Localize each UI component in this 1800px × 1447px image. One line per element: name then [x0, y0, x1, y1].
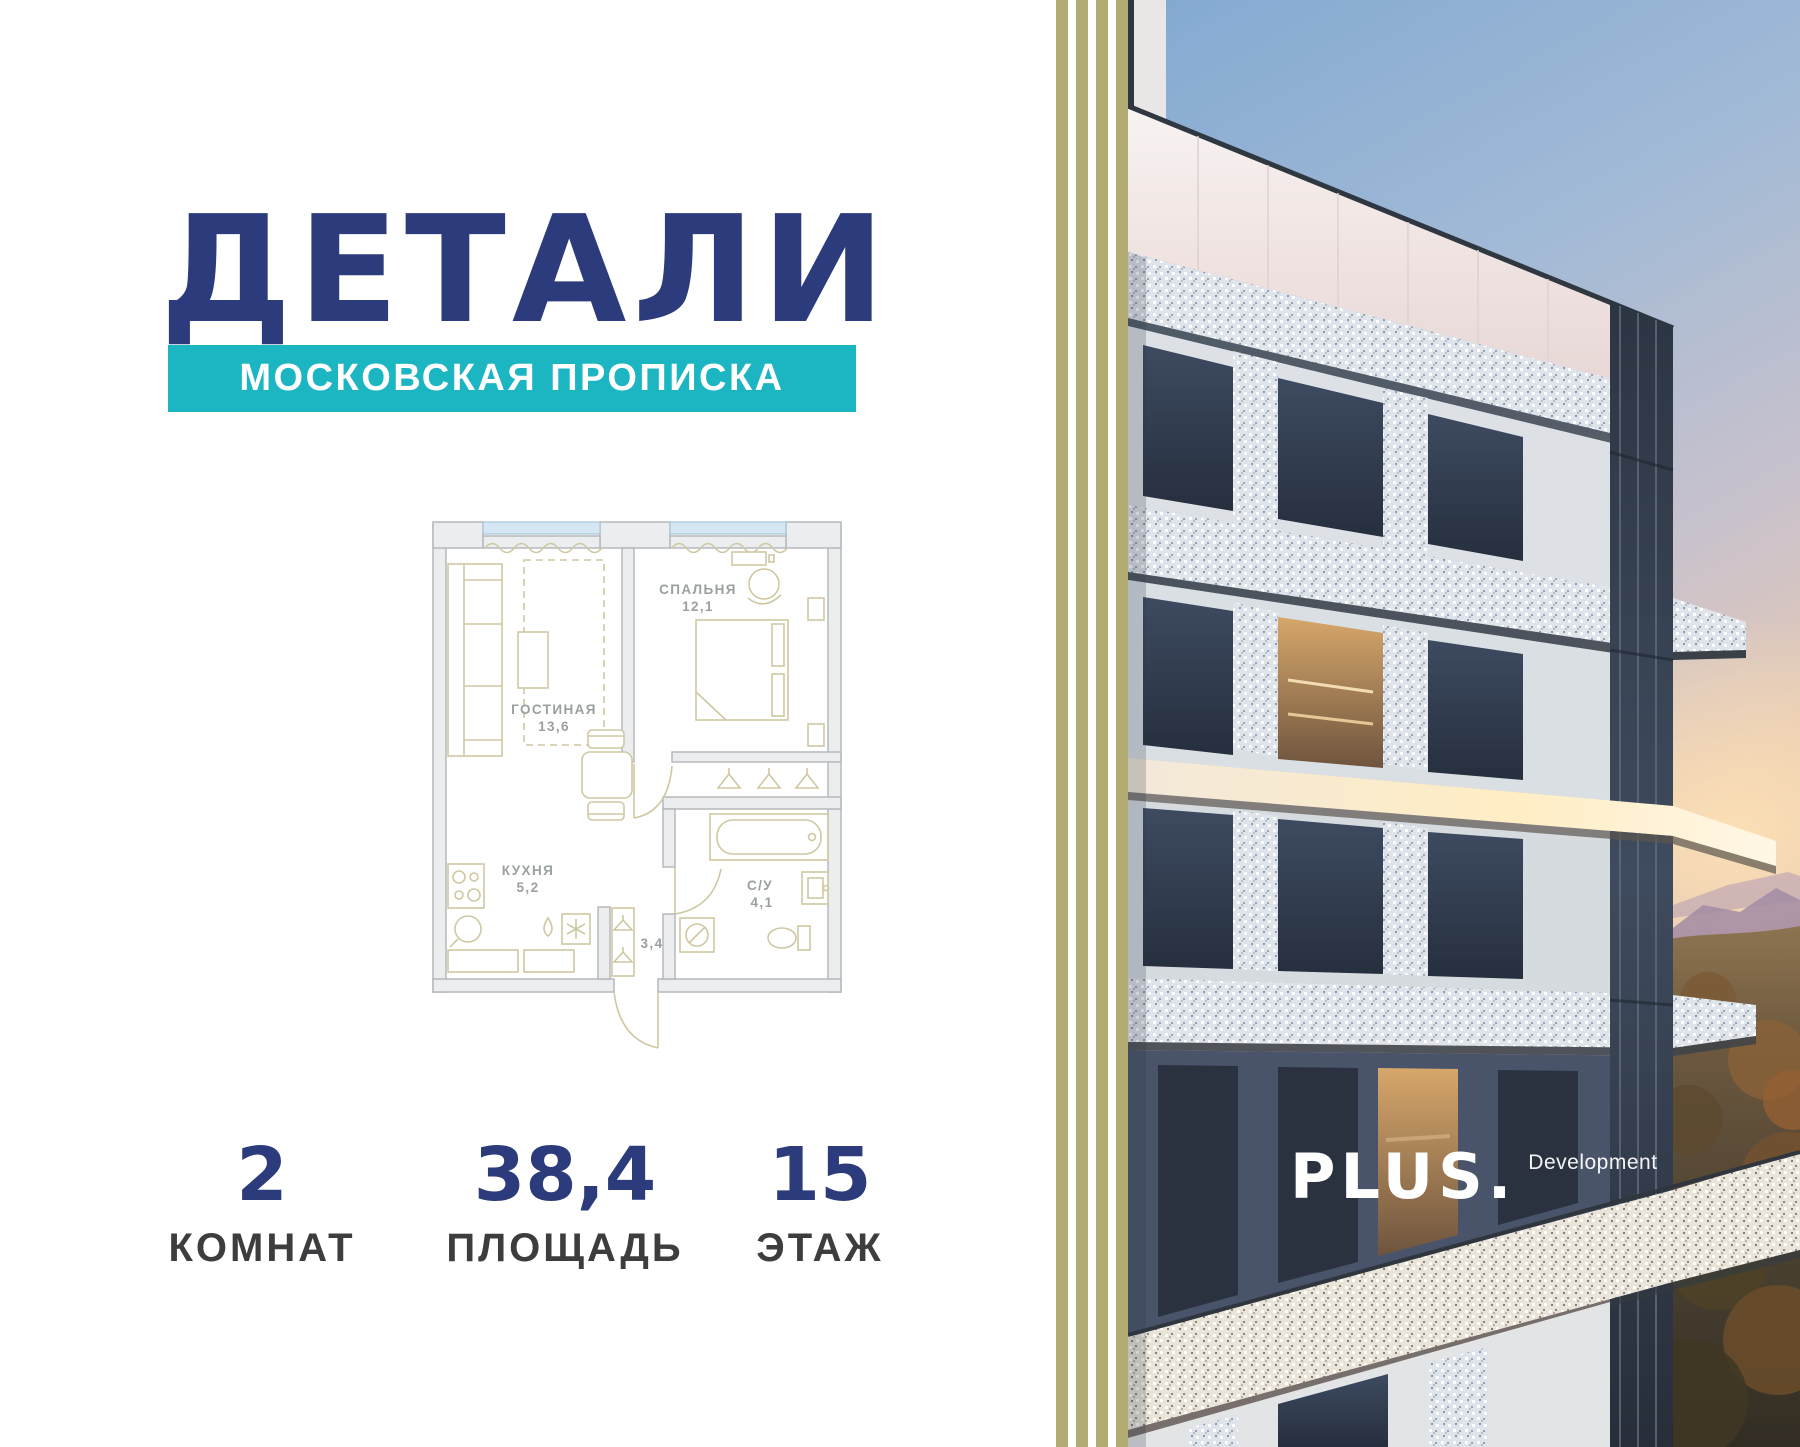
- tagline-text: МОСКОВСКАЯ ПРОПИСКА: [239, 357, 784, 400]
- room-bath-area: 4,1: [751, 895, 774, 910]
- stat-floor: 15 ЭТАЖ: [700, 1138, 940, 1271]
- floor-plan-drawing: ГОСТИНАЯ 13,6 СПАЛЬНЯ 12,1 КУХНЯ 5,2 С/У…: [428, 452, 848, 1064]
- developer-suffix: Development: [1528, 1151, 1657, 1175]
- window-strip: [483, 522, 600, 534]
- stats-row: 2 КОМНАТ 38,4 ПЛОЩАДЬ 15 ЭТАЖ: [0, 1128, 1010, 1288]
- stat-floor-label: ЭТАЖ: [700, 1226, 940, 1271]
- stat-rooms-value: 2: [142, 1138, 382, 1212]
- wardrobe-hangers: [718, 768, 818, 788]
- stripe: [1076, 0, 1088, 1447]
- room-kitchen-name: КУХНЯ: [502, 863, 554, 878]
- developer-logo: PLUS. Development: [1290, 1146, 1658, 1208]
- stat-area-label: ПЛОЩАДЬ: [420, 1226, 710, 1271]
- floor-plan: ГОСТИНАЯ 13,6 СПАЛЬНЯ 12,1 КУХНЯ 5,2 С/У…: [428, 452, 848, 1064]
- poster: ДЕТАЛИ МОСКОВСКАЯ ПРОПИСКА: [0, 0, 1800, 1447]
- stripe: [1116, 0, 1128, 1447]
- room-hall-area: 3,4: [641, 936, 664, 951]
- brand-logo: ДЕТАЛИ: [160, 196, 872, 344]
- left-shade: [1128, 252, 1146, 1447]
- stat-floor-value: 15: [700, 1138, 940, 1212]
- building-photo: PLUS. Development: [1128, 0, 1800, 1447]
- hall-closet: [612, 908, 634, 976]
- window-strip: [670, 522, 786, 534]
- tagline-band: МОСКОВСКАЯ ПРОПИСКА: [168, 345, 856, 412]
- stat-rooms-label: КОМНАТ: [142, 1226, 382, 1271]
- living-furniture: [448, 560, 632, 820]
- room-living-name: ГОСТИНАЯ: [511, 702, 597, 717]
- stat-rooms: 2 КОМНАТ: [142, 1138, 382, 1271]
- room-bedroom-area: 12,1: [682, 599, 714, 614]
- stat-area: 38,4 ПЛОЩАДЬ: [420, 1138, 710, 1271]
- room-bedroom-name: СПАЛЬНЯ: [659, 582, 737, 597]
- stripe: [1096, 0, 1108, 1447]
- room-living-area: 13,6: [538, 719, 570, 734]
- developer-name: PLUS.: [1290, 1146, 1516, 1208]
- divider-stripes: [1056, 0, 1128, 1447]
- stripe: [1056, 0, 1068, 1447]
- room-kitchen-area: 5,2: [517, 880, 540, 895]
- building-photo-art: [1128, 0, 1800, 1447]
- stat-area-value: 38,4: [420, 1138, 710, 1212]
- room-bath-name: С/У: [747, 878, 773, 893]
